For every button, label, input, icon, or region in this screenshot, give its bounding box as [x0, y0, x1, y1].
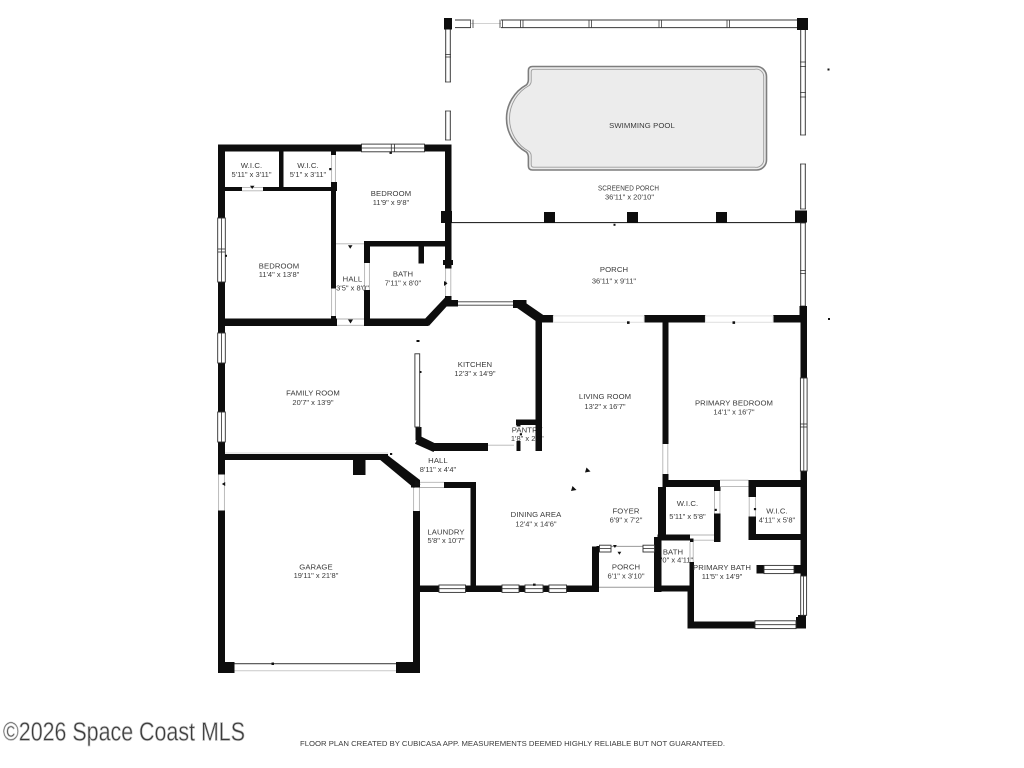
svg-text:36'11" x 20'10": 36'11" x 20'10" — [605, 193, 654, 202]
svg-text:W.I.C.: W.I.C. — [766, 507, 788, 516]
svg-text:DINING AREA: DINING AREA — [511, 510, 562, 519]
svg-text:PRIMARY BEDROOM: PRIMARY BEDROOM — [695, 398, 773, 407]
svg-text:BATH: BATH — [393, 269, 413, 278]
svg-text:36'11" x 9'11": 36'11" x 9'11" — [592, 276, 637, 285]
svg-text:12'3" x 14'9": 12'3" x 14'9" — [454, 369, 495, 378]
svg-text:13'2" x 16'7": 13'2" x 16'7" — [584, 402, 625, 411]
svg-text:2'0" x 4'11": 2'0" x 4'11" — [657, 556, 694, 565]
svg-text:14'1" x 16'7": 14'1" x 16'7" — [713, 408, 754, 417]
svg-text:W.I.C.: W.I.C. — [677, 499, 699, 508]
svg-text:8'11" x 4'4": 8'11" x 4'4" — [420, 465, 457, 474]
svg-text:LIVING ROOM: LIVING ROOM — [579, 392, 631, 401]
svg-text:11'9" x 9'8": 11'9" x 9'8" — [373, 198, 410, 207]
svg-text:©2026 Space Coast MLS: ©2026 Space Coast MLS — [3, 719, 245, 747]
svg-text:PRIMARY BATH: PRIMARY BATH — [693, 563, 751, 572]
svg-text:PORCH: PORCH — [600, 265, 628, 274]
svg-text:20'7" x 13'9": 20'7" x 13'9" — [292, 398, 333, 407]
svg-text:5'11" x 3'11": 5'11" x 3'11" — [231, 170, 271, 179]
svg-text:FAMILY ROOM: FAMILY ROOM — [286, 388, 340, 397]
svg-text:12'4" x 14'6": 12'4" x 14'6" — [515, 519, 556, 528]
svg-text:FOYER: FOYER — [613, 506, 640, 515]
svg-text:19'11" x 21'8": 19'11" x 21'8" — [294, 571, 339, 580]
svg-text:6'1" x 3'10": 6'1" x 3'10" — [608, 571, 645, 580]
svg-text:BEDROOM: BEDROOM — [371, 189, 411, 198]
svg-text:4'11" x 5'8": 4'11" x 5'8" — [759, 516, 796, 525]
svg-text:SCREENED PORCH: SCREENED PORCH — [598, 183, 659, 192]
svg-text:5'8" x 10'7": 5'8" x 10'7" — [428, 536, 465, 545]
svg-text:7'11" x 8'0": 7'11" x 8'0" — [385, 279, 422, 288]
svg-text:5'11" x 5'8": 5'11" x 5'8" — [669, 512, 706, 521]
svg-text:6'9" x 7'2": 6'9" x 7'2" — [610, 515, 643, 524]
svg-text:11'5" x 14'9": 11'5" x 14'9" — [702, 572, 743, 581]
svg-text:SWIMMING POOL: SWIMMING POOL — [609, 121, 675, 130]
svg-text:5'1" x 3'11": 5'1" x 3'11" — [290, 170, 327, 179]
svg-text:FLOOR PLAN CREATED BY CUBICASA: FLOOR PLAN CREATED BY CUBICASA APP. MEAS… — [300, 741, 725, 748]
svg-text:3'5" x 8'0": 3'5" x 8'0" — [336, 283, 369, 292]
svg-text:KITCHEN: KITCHEN — [458, 360, 492, 369]
svg-text:11'4" x 13'8": 11'4" x 13'8" — [259, 270, 300, 279]
svg-text:HALL: HALL — [343, 274, 363, 283]
svg-text:HALL: HALL — [428, 456, 448, 465]
